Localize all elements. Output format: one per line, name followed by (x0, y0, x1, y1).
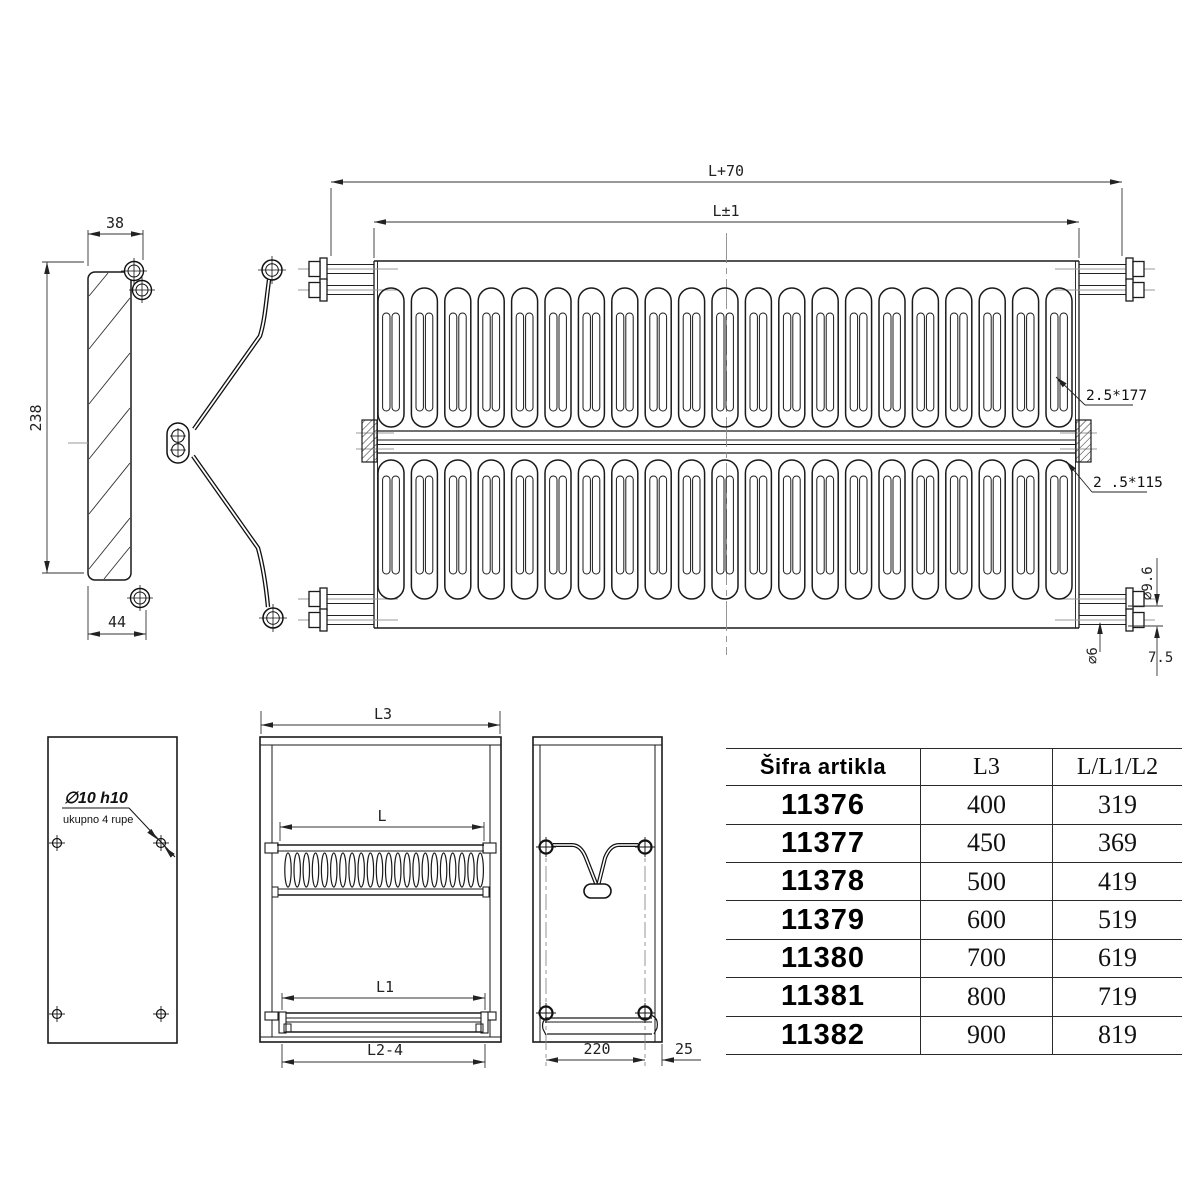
dim-38-label: 38 (106, 214, 124, 232)
table-row-code: 11380 (726, 940, 920, 978)
dim-l-label: L (377, 807, 386, 825)
table-row-length: 419 (1052, 863, 1182, 901)
pin-offset-label: 7.5 (1148, 650, 1173, 666)
table-row-length: 369 (1052, 825, 1182, 863)
wire-loops-row-top (378, 288, 1072, 427)
table-row-length: 519 (1052, 901, 1182, 939)
table-row-l3: 600 (920, 901, 1052, 939)
bent-wire-bracket (167, 256, 287, 632)
dim-220-label: 220 (583, 1040, 610, 1058)
bracket-panel (68, 258, 155, 611)
plate-rack-band (265, 843, 496, 897)
table-row-l3: 400 (920, 786, 1052, 824)
wire-end-top (258, 256, 286, 284)
technical-drawing-page: L+70 L±1 (0, 0, 1202, 1202)
wire-loops-row-bottom (378, 460, 1072, 599)
dimension-l2: L2-4 (282, 1041, 485, 1068)
dim-l3-label: L3 (374, 705, 392, 723)
dim-44-label: 44 (108, 613, 126, 631)
wire-end-bottom (259, 604, 287, 632)
table-row-code: 11378 (726, 863, 920, 901)
drip-tray (265, 1012, 496, 1033)
dimension-l: L (280, 807, 484, 841)
table-row-code: 11381 (726, 978, 920, 1016)
wire-spec-bottom-label: 2 .5*115 (1093, 475, 1163, 491)
table-row-l3: 800 (920, 978, 1052, 1016)
dimension-238: 238 (27, 262, 84, 573)
front-view: L3 L (260, 705, 501, 1068)
dim-label-length: L±1 (712, 202, 739, 220)
dia-inner-label: ∅6 (1085, 647, 1101, 664)
plate-rack-loops (285, 853, 484, 887)
dimension-l1: L1 (282, 978, 485, 1010)
dimension-25: 25 (662, 1040, 701, 1066)
dimension-l3: L3 (261, 705, 500, 734)
dim-label-overall: L+70 (708, 162, 744, 180)
table-header-l3: L3 (920, 748, 1052, 786)
wire-spec-callout-top: 2.5*177 (1054, 375, 1147, 405)
dimension-38: 38 (88, 214, 143, 266)
table-row-l3: 500 (920, 863, 1052, 901)
main-rack-view: L+70 L±1 (298, 162, 1173, 676)
table-header-code: Šifra artikla (726, 748, 920, 786)
dim-l2-label: L2-4 (367, 1041, 403, 1059)
table-row-code: 11379 (726, 901, 920, 939)
dim-25-label: 25 (675, 1040, 693, 1058)
table-row-l3: 900 (920, 1017, 1052, 1055)
wire-spec-top-label: 2.5*177 (1086, 388, 1147, 404)
table-row-l3: 700 (920, 940, 1052, 978)
tray-profile (543, 1015, 658, 1035)
hole-spec-label: ∅10 h10 (64, 790, 128, 807)
table-header-length: L/L1/L2 (1052, 748, 1182, 786)
table-row-length: 319 (1052, 786, 1182, 824)
dimension-220: 220 (546, 1040, 645, 1063)
v-bracket-wire (553, 845, 638, 898)
dim-238-label: 238 (27, 404, 45, 431)
bracket-pin-bottom (127, 585, 153, 611)
wire-centre-clip (167, 423, 189, 463)
bracket-side-profile: 38 238 44 (27, 214, 155, 640)
dia-outer-label: ∅9.6 (1140, 566, 1156, 600)
table-row-length: 819 (1052, 1017, 1182, 1055)
table-row-code: 11382 (726, 1017, 920, 1055)
article-table: Šifra artikla L3 L/L1/L2 11376 400 319 1… (726, 748, 1182, 1055)
table-row-l3: 450 (920, 825, 1052, 863)
back-panel-view: ∅10 h10 ukupno 4 rupe (48, 737, 177, 1043)
table-row-length: 719 (1052, 978, 1182, 1016)
dim-l1-label: L1 (376, 978, 394, 996)
table-row-length: 619 (1052, 940, 1182, 978)
table-row-code: 11377 (726, 825, 920, 863)
side-view: 220 25 (533, 737, 701, 1066)
table-row-code: 11376 (726, 786, 920, 824)
hole-count-label: ukupno 4 rupe (63, 814, 133, 826)
